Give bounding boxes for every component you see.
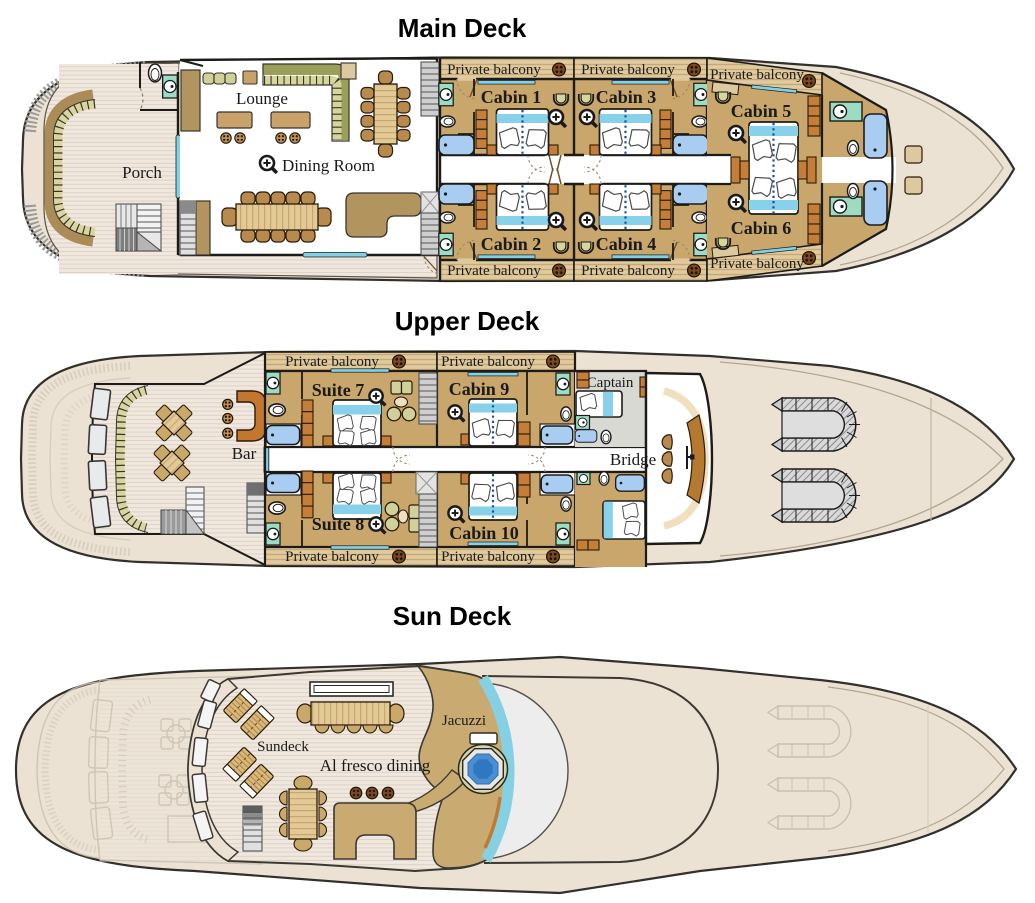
svg-text:Cabin 9: Cabin 9 <box>449 379 510 399</box>
svg-text:Private balcony: Private balcony <box>581 62 675 78</box>
svg-text:Private balcony: Private balcony <box>285 549 379 565</box>
svg-text:Private balcony: Private balcony <box>447 263 541 279</box>
svg-text:Lounge: Lounge <box>236 89 288 108</box>
svg-text:Private balcony: Private balcony <box>710 256 804 272</box>
svg-text:Private balcony: Private balcony <box>581 263 675 279</box>
svg-text:Sun Deck: Sun Deck <box>393 601 512 631</box>
svg-text:Private balcony: Private balcony <box>441 354 535 370</box>
svg-text:Main Deck: Main Deck <box>398 13 527 43</box>
svg-text:Cabin 2: Cabin 2 <box>481 234 542 254</box>
svg-text:Bridge: Bridge <box>610 450 656 469</box>
svg-text:Bar: Bar <box>232 444 257 463</box>
svg-text:Sundeck: Sundeck <box>257 739 309 755</box>
svg-text:Cabin 4: Cabin 4 <box>596 234 657 254</box>
svg-text:Suite 7: Suite 7 <box>312 380 365 400</box>
svg-text:Dining Room: Dining Room <box>282 156 375 175</box>
svg-text:Jacuzzi: Jacuzzi <box>442 713 486 729</box>
svg-text:Private balcony: Private balcony <box>710 67 804 83</box>
svg-text:Private balcony: Private balcony <box>447 62 541 78</box>
svg-text:Private balcony: Private balcony <box>285 354 379 370</box>
svg-text:Upper Deck: Upper Deck <box>395 306 540 336</box>
svg-text:Cabin 3: Cabin 3 <box>596 87 657 107</box>
svg-text:Private balcony: Private balcony <box>441 549 535 565</box>
svg-text:Cabin 10: Cabin 10 <box>449 523 519 543</box>
svg-text:Porch: Porch <box>122 163 162 182</box>
svg-text:Suite 8: Suite 8 <box>312 514 365 534</box>
svg-text:Captain: Captain <box>587 375 634 391</box>
svg-text:Cabin 6: Cabin 6 <box>731 218 792 238</box>
svg-text:Cabin 1: Cabin 1 <box>481 87 542 107</box>
svg-text:Al fresco dining: Al fresco dining <box>320 756 431 775</box>
svg-text:Cabin 5: Cabin 5 <box>731 101 792 121</box>
